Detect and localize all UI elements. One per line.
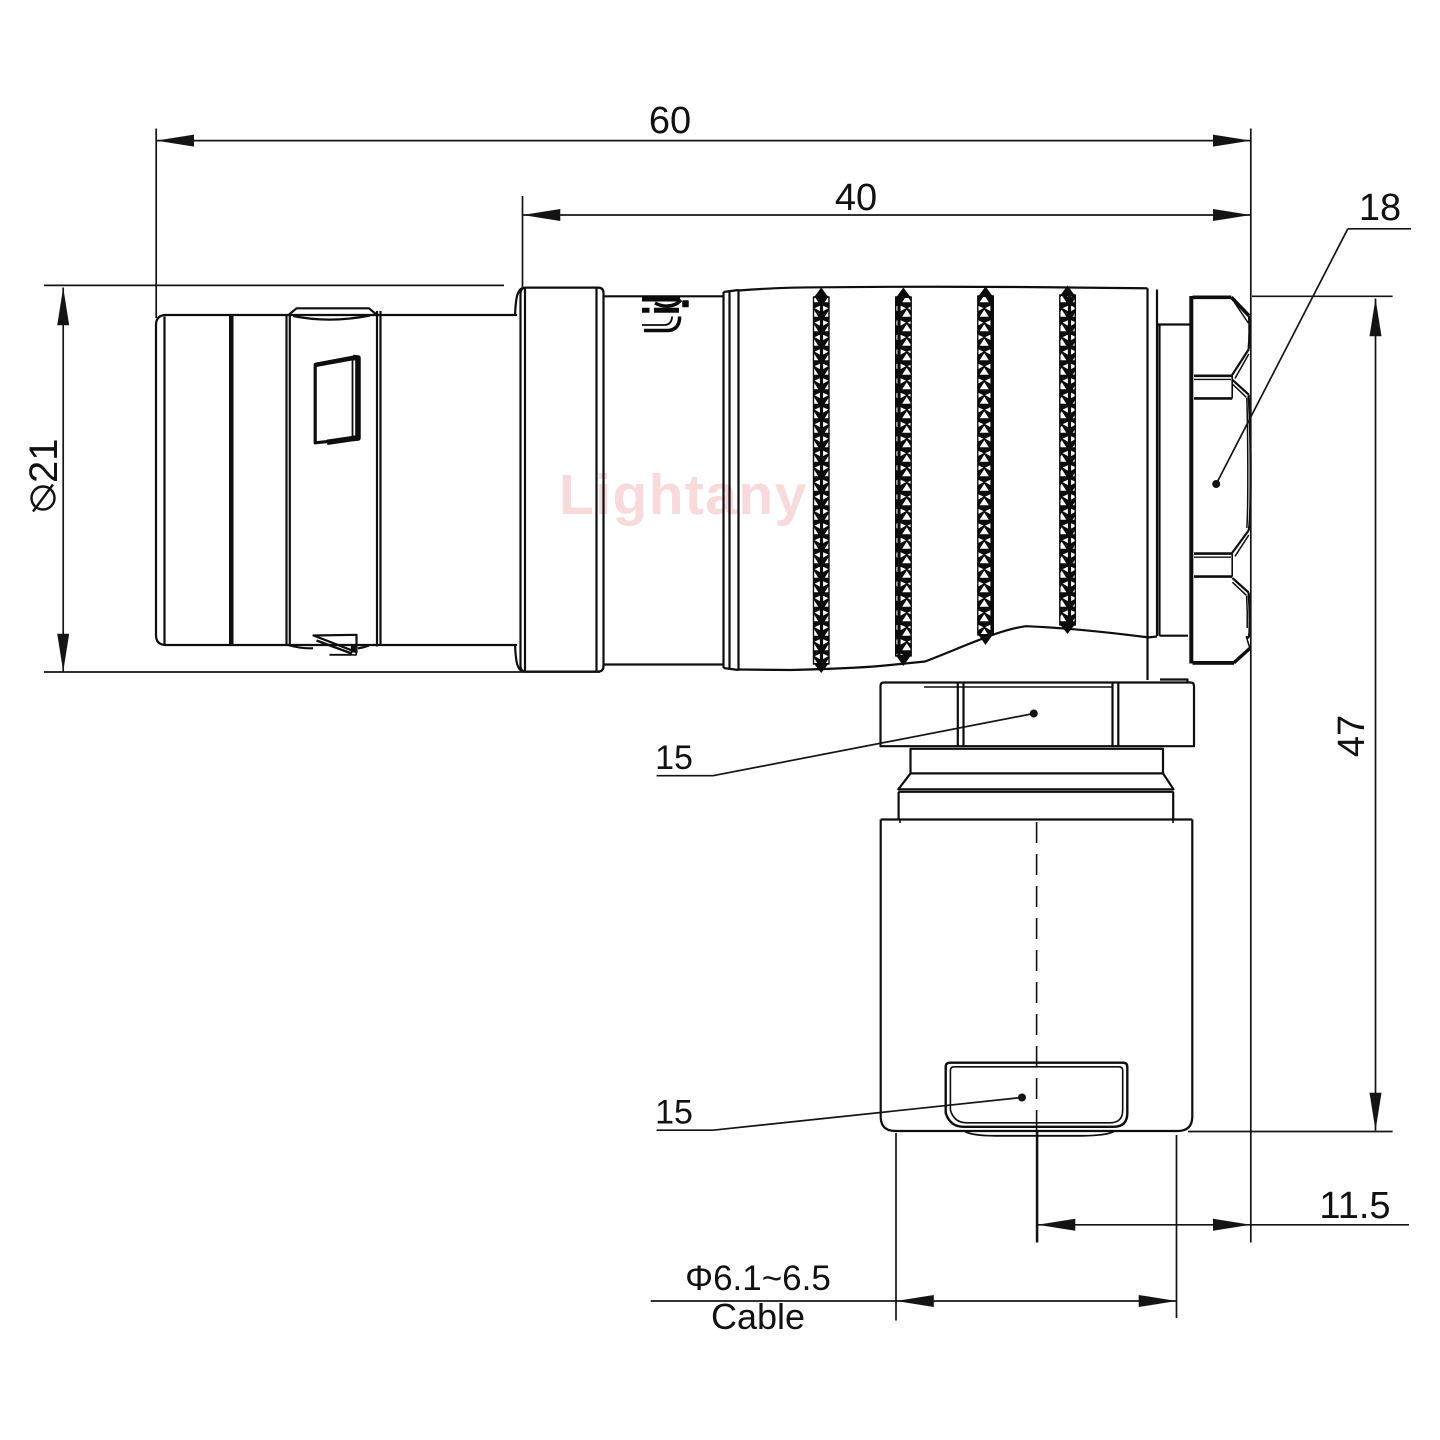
svg-text:15: 15: [655, 1094, 693, 1132]
svg-text:18: 18: [1359, 187, 1401, 229]
svg-text:47: 47: [1331, 715, 1373, 757]
svg-text:60: 60: [649, 100, 691, 142]
svg-text:15: 15: [655, 739, 693, 777]
svg-text:40: 40: [835, 177, 877, 219]
svg-text:21: 21: [22, 439, 66, 484]
svg-text:11.5: 11.5: [1319, 1185, 1390, 1227]
svg-text:Cable: Cable: [711, 1296, 805, 1337]
svg-text:Φ6.1~6.5: Φ6.1~6.5: [685, 1259, 831, 1298]
